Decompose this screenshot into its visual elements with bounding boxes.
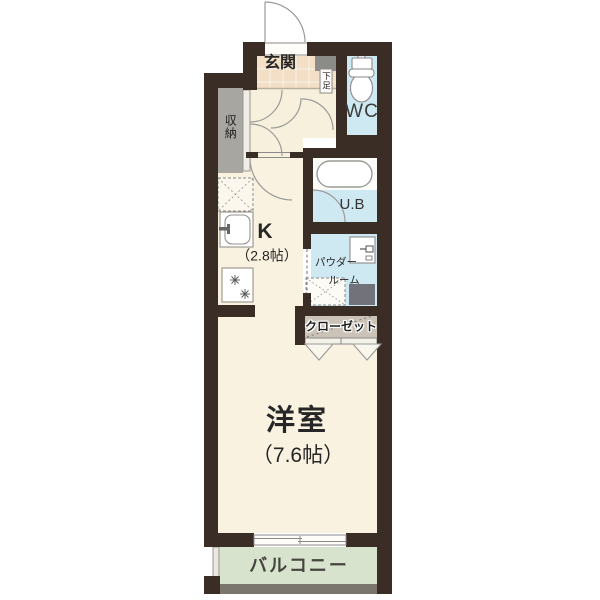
sliding-window-icon [254, 535, 346, 545]
powder-room-label-line2: ルーム [328, 275, 359, 286]
closet-label: クローゼット [305, 321, 377, 334]
unit-bath-label: U.B [339, 197, 364, 213]
toilet-icon [349, 55, 374, 102]
stove-icon [222, 268, 253, 302]
balcony-front-rail [210, 584, 385, 594]
entrance-door-arc [265, 2, 305, 42]
kitchen-label: K [257, 221, 272, 243]
storage-door [243, 90, 250, 171]
storage-label: 収納 [224, 114, 237, 140]
balcony-label: バルコニー [249, 557, 349, 576]
kitchen-sink-icon [219, 212, 253, 247]
refrigerator-space-icon [218, 178, 253, 211]
bathtub-icon [317, 161, 372, 187]
powder-room-label-line1: パウダー [315, 257, 357, 268]
kitchen-size-label: （2.8帖） [236, 249, 297, 264]
hall-floor-lower [246, 138, 303, 154]
floor-plan-graphic [0, 0, 600, 600]
genkan-label: 玄関 [264, 56, 296, 73]
hall-floor [250, 88, 336, 138]
western-room-label: 洋室 [266, 406, 328, 436]
floor-plan: 玄関 下足 WC 収納 K （2.8帖） U.B パウダー ルーム クローゼット… [0, 0, 600, 600]
wc-label: WC [345, 102, 379, 122]
western-room-size-label: （7.6帖） [252, 445, 344, 467]
balcony-side-rail [213, 547, 219, 581]
appliance-box-icon [349, 284, 375, 305]
shoe-cabinet-label: 下足 [320, 69, 333, 94]
